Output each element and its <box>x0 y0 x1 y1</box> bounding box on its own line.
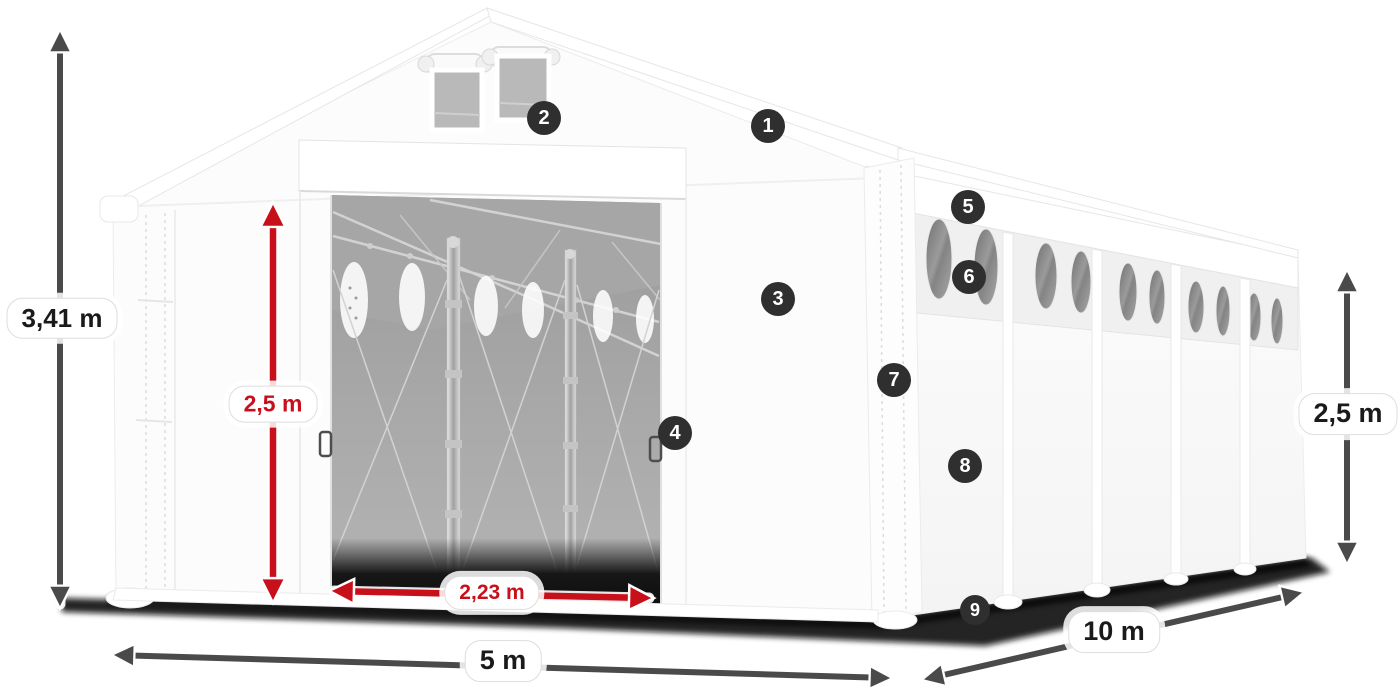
callout-badge-1: 1 <box>751 109 785 143</box>
callout-badge-9: 9 <box>960 595 990 625</box>
dimension-label-front-width: 5 m <box>465 640 542 682</box>
callout-badge-7: 7 <box>877 363 911 397</box>
side-wall <box>866 166 1306 620</box>
dimension-label-side-height: 2,5 m <box>1298 393 1397 435</box>
callout-badge-3: 3 <box>761 282 795 316</box>
dimension-label-door-height: 2,5 m <box>229 386 318 423</box>
callout-badge-6: 6 <box>952 260 986 294</box>
callout-badge-5: 5 <box>951 190 985 224</box>
door-header-beam <box>299 140 686 199</box>
tent-illustration <box>0 0 1400 700</box>
callout-badge-4: 4 <box>658 416 692 450</box>
tent-dimensions-diagram: 3,41 m 2,5 m 2,23 m 5 m 10 m 2,5 m 1 2 3… <box>0 0 1400 700</box>
dimension-label-total-height: 3,41 m <box>7 298 118 339</box>
door-interior <box>325 190 670 620</box>
dimension-label-side-length: 10 m <box>1068 611 1160 653</box>
callout-badge-2: 2 <box>527 101 561 135</box>
callout-badge-8: 8 <box>948 449 982 483</box>
dimension-label-door-width: 2,23 m <box>444 576 539 610</box>
